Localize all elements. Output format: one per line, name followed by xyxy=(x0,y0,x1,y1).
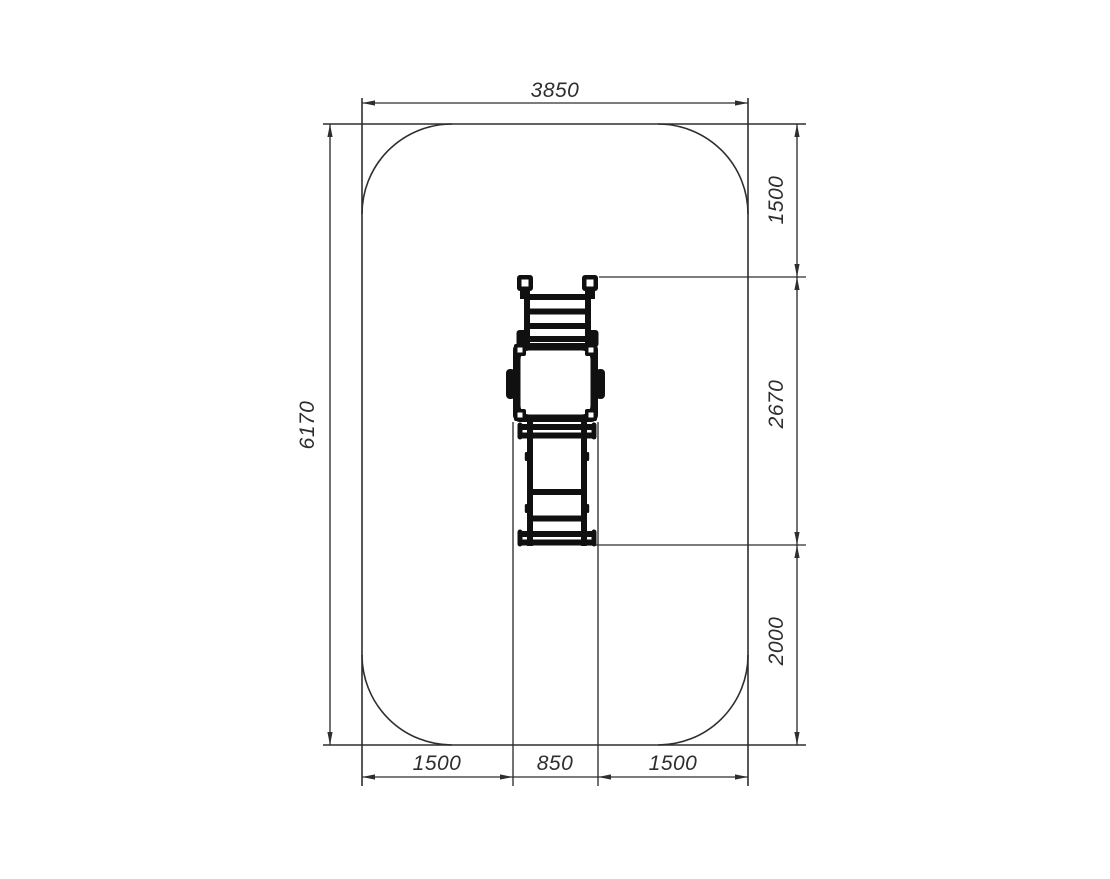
slide-bottom-bar xyxy=(520,540,594,546)
dim-label-bottom-1: 850 xyxy=(537,752,574,775)
dim-label-bottom-0: 1500 xyxy=(413,752,462,775)
ladder-rung xyxy=(524,294,591,300)
slide-rail-nub xyxy=(525,452,528,461)
dim-label-top-width: 3850 xyxy=(531,79,580,102)
ladder-rung xyxy=(524,309,591,315)
platform-corner-post-hole xyxy=(589,348,594,353)
slide-crossbar xyxy=(527,516,587,522)
platform-corner-post-hole xyxy=(518,413,523,418)
dim-label-left-height: 6170 xyxy=(296,401,319,450)
slide-right-rail xyxy=(581,420,587,546)
slide-top-end-tab xyxy=(592,423,597,440)
ladder-rung xyxy=(524,336,591,342)
slide-bottom-bar xyxy=(520,531,594,537)
slide-crossbar xyxy=(527,489,587,495)
drawing-background xyxy=(0,0,1110,879)
dim-label-right-0: 1500 xyxy=(765,176,788,225)
dim-label-bottom-2: 1500 xyxy=(649,752,698,775)
slide-rail-nub xyxy=(586,452,589,461)
platform-corner-post-hole xyxy=(589,413,594,418)
dim-label-right-1: 2670 xyxy=(765,380,788,430)
slide-top-end-tab xyxy=(518,423,523,440)
slide-left-rail xyxy=(527,420,533,546)
platform-section xyxy=(506,343,605,422)
platform-deck xyxy=(521,351,591,415)
platform-corner-post-hole xyxy=(518,348,523,353)
slide-top-bar xyxy=(520,424,594,430)
technical-drawing-canvas: 3850 6170 1500 2670 2000 1500 850 1500 xyxy=(0,0,1110,879)
ladder-left-post-hole xyxy=(522,280,529,287)
dim-label-right-2: 2000 xyxy=(765,617,788,667)
slide-bottom-end-tab xyxy=(592,530,597,547)
ladder-rung xyxy=(524,323,591,329)
slide-rail-nub xyxy=(525,504,528,513)
technical-drawing-page: 3850 6170 1500 2670 2000 1500 850 1500 xyxy=(0,0,1110,879)
slide-top-bar xyxy=(520,433,594,439)
slide-bottom-end-tab xyxy=(518,530,523,547)
ladder-right-post-hole xyxy=(587,280,594,287)
slide-rail-nub xyxy=(586,504,589,513)
